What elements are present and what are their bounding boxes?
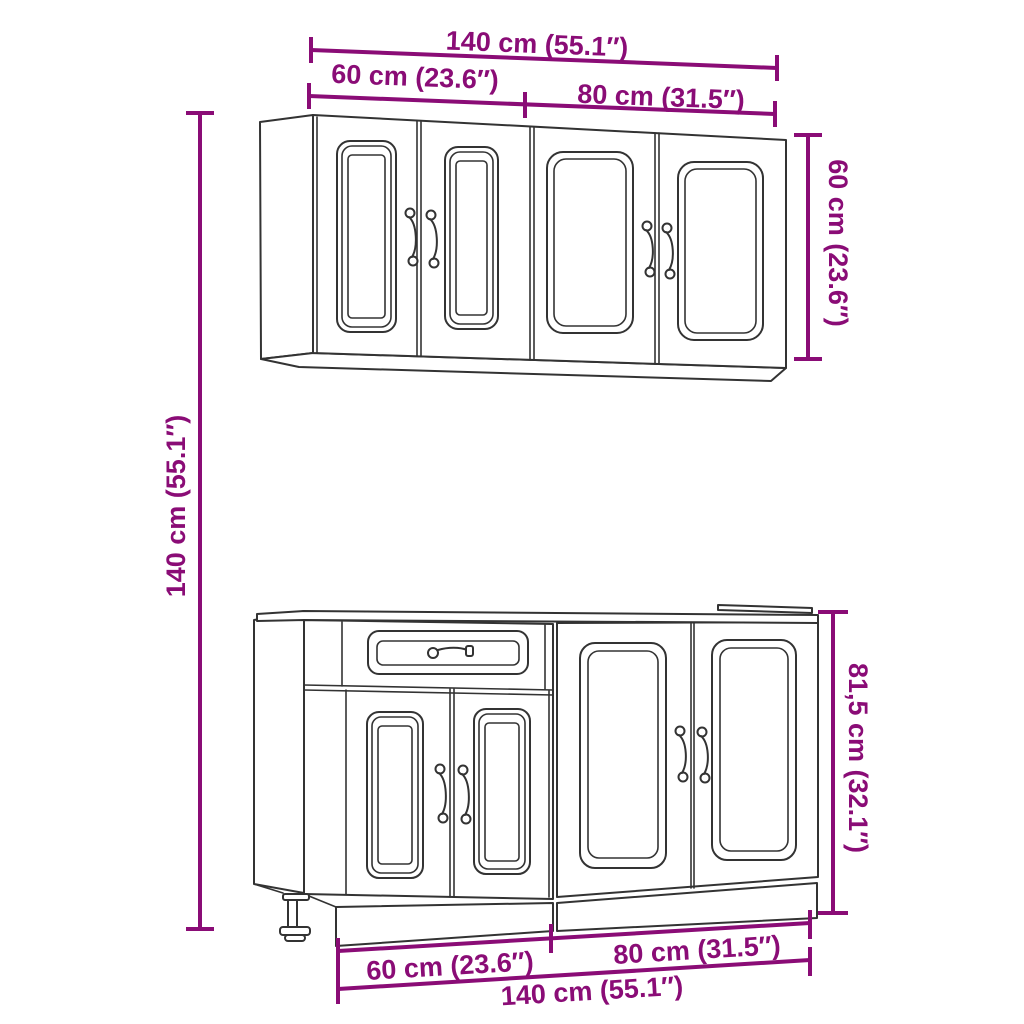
- wall-cabinet-drawing: [260, 115, 786, 381]
- dim-label-left-total-height: 140 cm (55.1″): [161, 415, 191, 598]
- diagram-canvas: 140 cm (55.1″) 60 cm (23.6″) 80 cm (31.5…: [0, 0, 1024, 1024]
- wall-cabinet-front-face: [313, 115, 786, 368]
- wall-cabinet-side-panel: [260, 115, 313, 359]
- base-cabinet-drawing: [254, 605, 818, 946]
- base-cabinet-side-panel: [254, 611, 304, 893]
- dim-label-base-height: 81,5 cm (32.1″): [843, 663, 873, 853]
- product-dimension-diagram: 140 cm (55.1″) 60 cm (23.6″) 80 cm (31.5…: [0, 0, 1024, 1024]
- dim-label-wall-height: 60 cm (23.6″): [823, 159, 853, 327]
- dim-label-top-left: 60 cm (23.6″): [331, 59, 500, 95]
- base-cabinet-right-front: [557, 622, 818, 897]
- dim-label-top-right: 80 cm (31.5″): [577, 79, 746, 115]
